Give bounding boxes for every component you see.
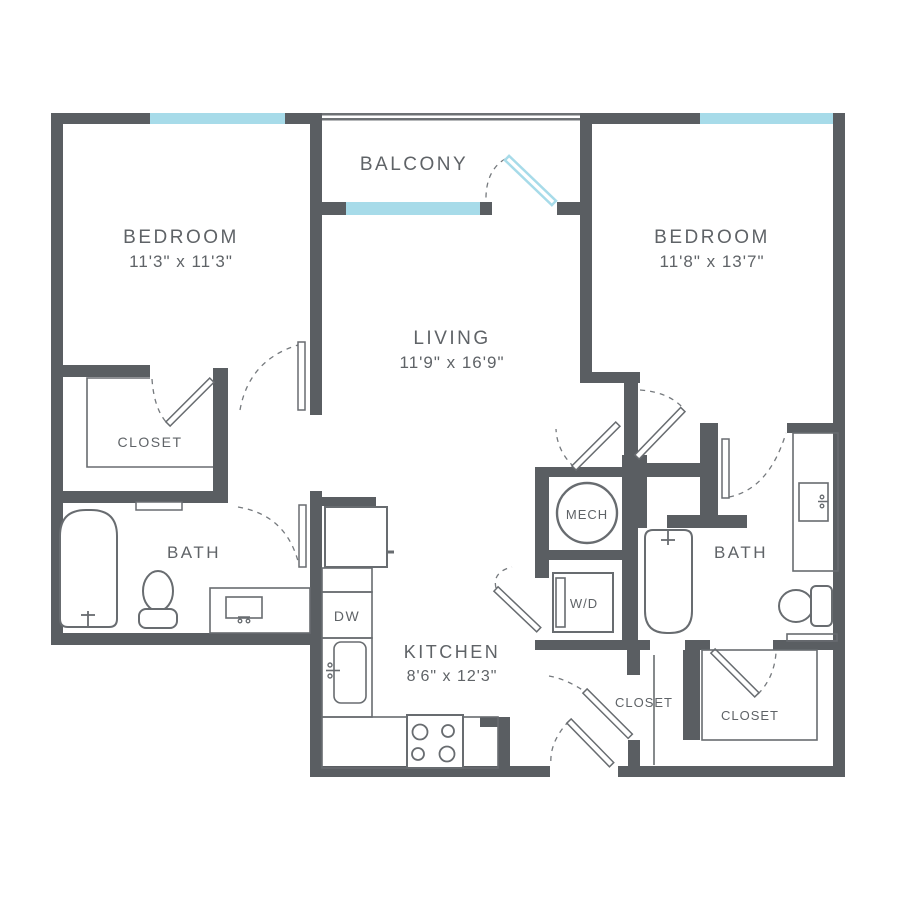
living-label: LIVING (413, 328, 490, 349)
mech-door-arc (556, 429, 574, 467)
windows (150, 113, 833, 215)
balcony-door-arc (486, 159, 505, 202)
mech-label: MECH (566, 507, 608, 522)
kitchen-faucet (326, 663, 340, 678)
closet-right-label: CLOSET (721, 708, 779, 723)
balcony-railing (322, 113, 580, 116)
bath-right-door-leaf (722, 439, 729, 498)
closet-left-label: CLOSET (117, 434, 182, 450)
wd-door-leaf (494, 587, 541, 632)
kitchen-counter (322, 568, 372, 592)
dishwasher-label: DW (334, 608, 360, 624)
bath-left-door-arc (238, 507, 299, 565)
mech-door-leaf (572, 422, 620, 470)
window-bedroom-left (150, 113, 285, 124)
bedroom-left-door-leaf (298, 342, 305, 410)
toilet-right-tank (811, 586, 832, 626)
bathtub-left (60, 510, 117, 627)
bathtub-right (645, 530, 692, 633)
closet-left-outline (87, 378, 213, 467)
balcony-railing (322, 118, 580, 121)
kitchen-dims: 8'6" x 12'3" (407, 668, 498, 685)
entry-door-arc (551, 721, 569, 765)
kitchen-fixtures (322, 507, 498, 768)
bath-left-door-leaf (299, 505, 306, 567)
toilet-left-tank (139, 609, 177, 628)
closet-right-door-arc (758, 653, 776, 694)
bath-right-label: BATH (714, 543, 768, 562)
toilet-right-bowl (779, 590, 813, 622)
bedroom-left-door-arc (240, 345, 298, 410)
closet-right-outline (702, 650, 817, 740)
closet-right-door-leaf (711, 649, 759, 697)
window-bedroom-right (700, 113, 833, 124)
bath-left-label: BATH (167, 543, 221, 562)
closet-left-door-arc (152, 379, 167, 423)
bath-right-door-arc (729, 433, 786, 497)
floor-plan: BEDROOM 11'3" x 11'3" BALCONY BEDROOM 11… (0, 0, 900, 900)
bedroom-left-dims: 11'3" x 11'3" (129, 252, 233, 271)
window-living-balcony (346, 202, 480, 215)
wd-label: W/D (570, 596, 598, 611)
toilet-left-bowl (143, 571, 173, 611)
closet-left-door-leaf (166, 378, 214, 426)
entry-door-leaf (567, 719, 614, 767)
balcony-door-leaf (505, 156, 556, 205)
bedroom-right-dims: 11'8" x 13'7" (660, 252, 765, 271)
bedroom-right-door-leaf (635, 407, 685, 459)
wd-door-arc (495, 567, 512, 588)
refrigerator (325, 507, 387, 567)
living-dims: 11'9" x 16'9" (400, 353, 505, 372)
bath-left-fixtures (60, 510, 310, 633)
kitchen-label: KITCHEN (404, 642, 501, 662)
closet-hall-door-arc (549, 676, 584, 691)
vanity-right-faucet (818, 495, 828, 508)
balcony-label: BALCONY (360, 154, 468, 175)
vanity-left-sink (226, 597, 262, 618)
bedroom-left-label: BEDROOM (123, 227, 239, 248)
bath-left-door-frame (136, 502, 182, 510)
floor-plan-svg: BEDROOM 11'3" x 11'3" BALCONY BEDROOM 11… (0, 0, 900, 900)
bedroom-right-label: BEDROOM (654, 227, 770, 248)
closet-hall-label: CLOSET (615, 695, 673, 710)
bedroom-right-door-arc (640, 390, 684, 409)
kitchen-sink (334, 642, 366, 703)
vanity-left (210, 588, 310, 633)
shelf-right (787, 634, 837, 641)
